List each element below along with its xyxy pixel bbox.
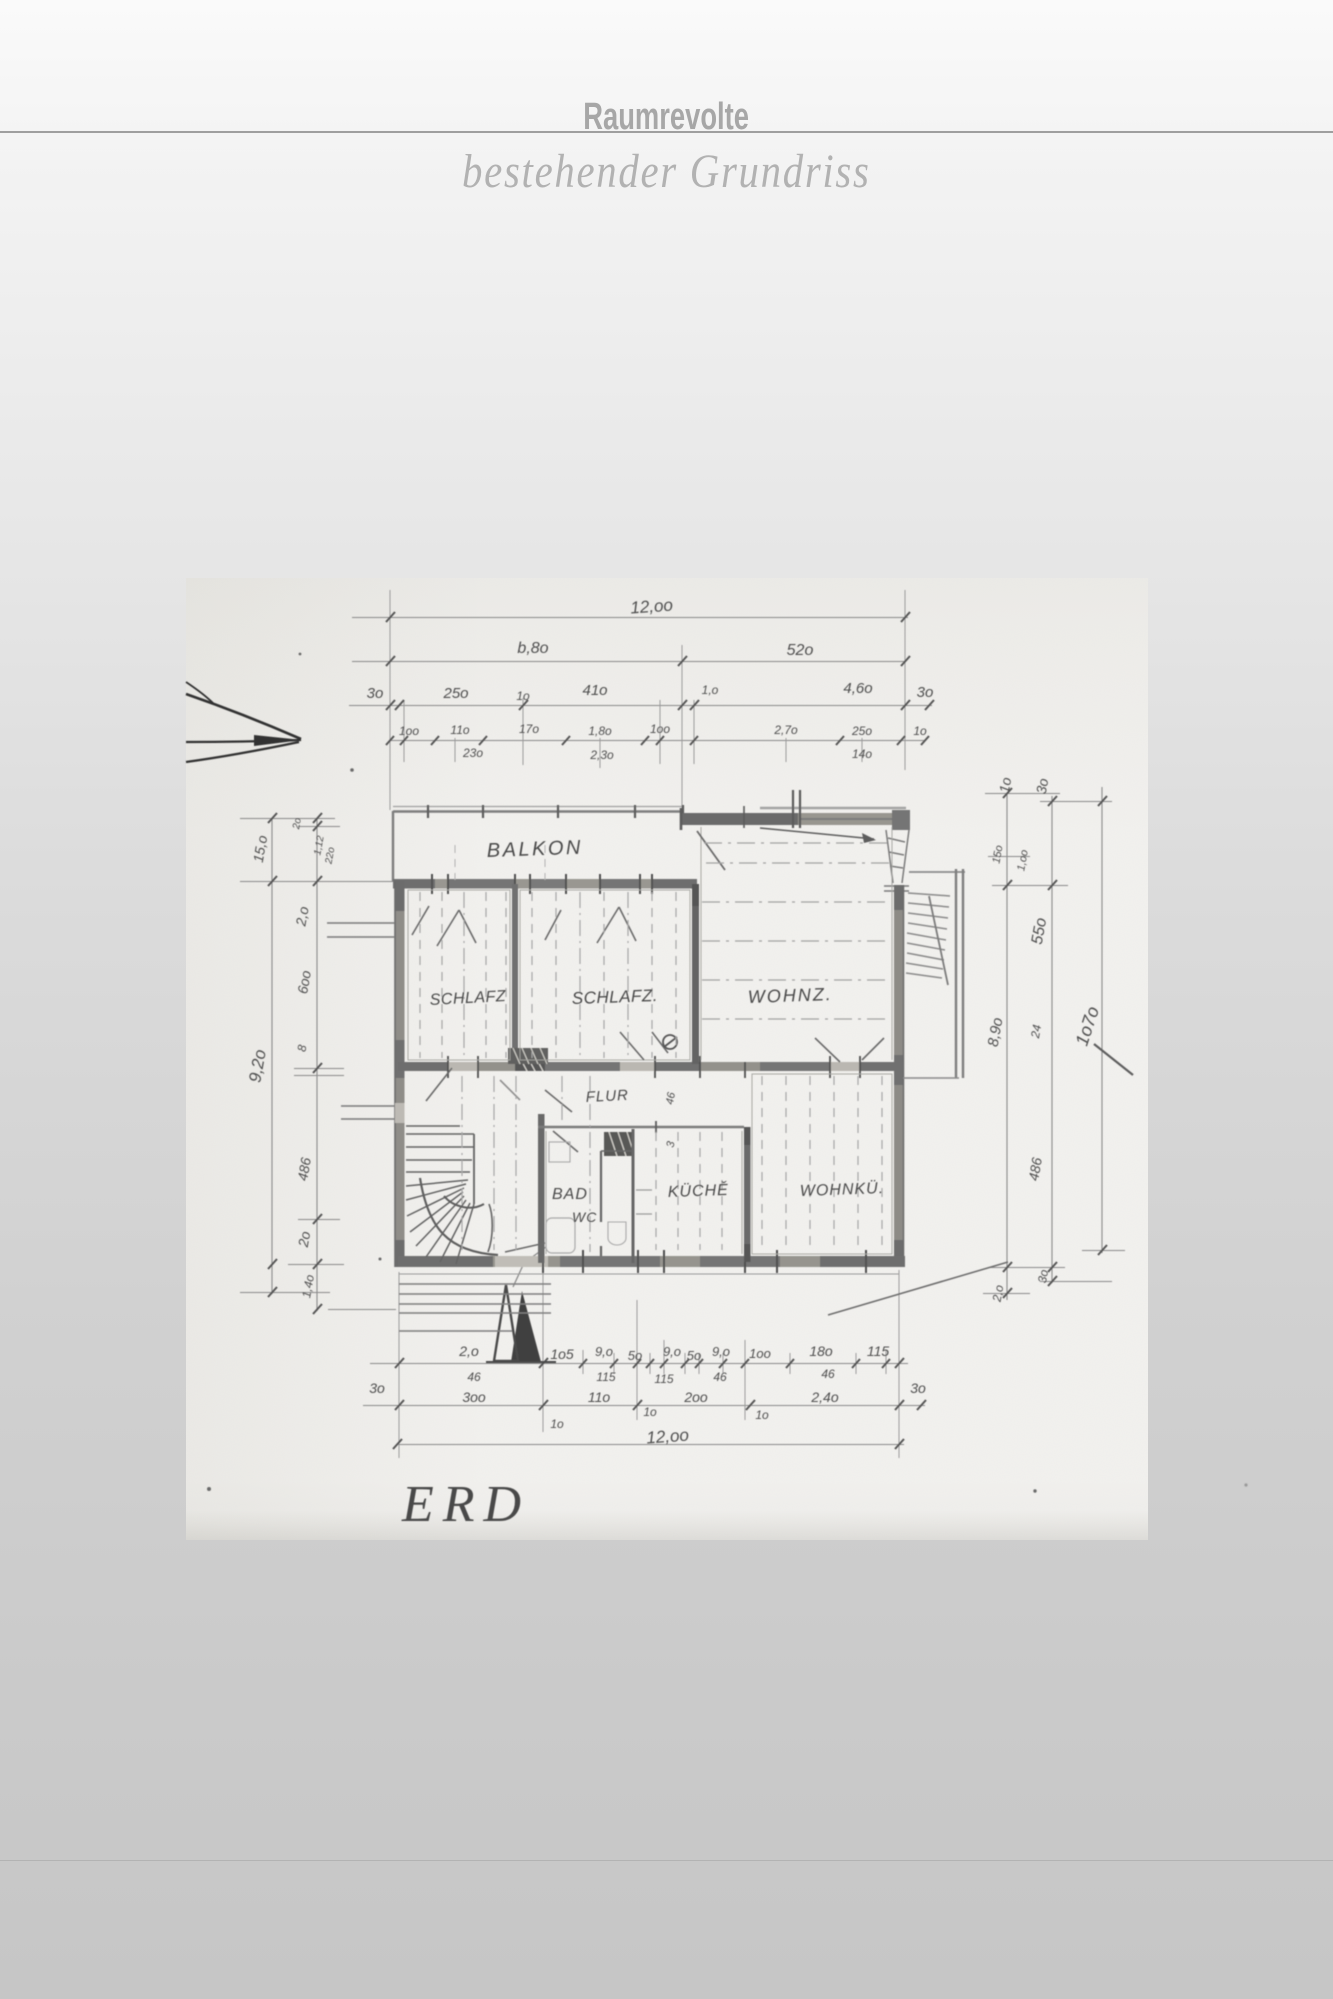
svg-text:5o: 5o xyxy=(628,1348,642,1363)
svg-text:1o: 1o xyxy=(643,1405,657,1419)
svg-text:2o: 2o xyxy=(291,817,304,831)
svg-text:12,oo: 12,oo xyxy=(646,1426,690,1448)
svg-text:12,oo: 12,oo xyxy=(630,596,674,618)
svg-text:25o: 25o xyxy=(442,685,468,702)
svg-text:9,o: 9,o xyxy=(595,1344,613,1359)
svg-text:46: 46 xyxy=(713,1370,727,1384)
svg-text:25o: 25o xyxy=(851,724,872,738)
svg-text:3o: 3o xyxy=(1035,1268,1051,1284)
svg-text:3o: 3o xyxy=(917,684,934,701)
svg-text:41o: 41o xyxy=(582,682,607,699)
svg-text:3oo: 3oo xyxy=(462,1389,486,1405)
svg-text:b,8o: b,8o xyxy=(517,640,548,657)
svg-text:1o: 1o xyxy=(516,689,530,703)
svg-text:2,7o: 2,7o xyxy=(773,723,798,737)
svg-text:WOHNKÜ.: WOHNKÜ. xyxy=(800,1179,885,1200)
svg-text:2,4o: 2,4o xyxy=(810,1389,838,1405)
svg-text:3o: 3o xyxy=(367,685,384,702)
svg-text:23o: 23o xyxy=(462,746,483,760)
svg-text:2o: 2o xyxy=(295,1230,314,1249)
svg-text:1o: 1o xyxy=(913,724,927,738)
svg-text:46: 46 xyxy=(821,1367,835,1381)
svg-text:4,6o: 4,6o xyxy=(843,680,872,697)
svg-text:FLUR: FLUR xyxy=(585,1087,629,1106)
svg-text:2,o: 2,o xyxy=(458,1343,479,1359)
svg-text:18o: 18o xyxy=(809,1343,833,1359)
svg-text:1,o: 1,o xyxy=(702,683,719,697)
svg-text:1oo: 1oo xyxy=(650,722,670,736)
svg-text:115: 115 xyxy=(654,1372,673,1386)
svg-text:14o: 14o xyxy=(852,747,872,761)
svg-text:24: 24 xyxy=(1028,1023,1044,1040)
svg-text:WC: WC xyxy=(572,1209,597,1225)
svg-text:9,o: 9,o xyxy=(712,1344,730,1359)
svg-text:1o5: 1o5 xyxy=(550,1346,574,1362)
svg-text:WOHNZ.: WOHNZ. xyxy=(747,984,833,1007)
svg-text:2oo: 2oo xyxy=(683,1389,708,1405)
svg-text:2,3o: 2,3o xyxy=(589,748,614,762)
svg-text:3o: 3o xyxy=(910,1380,926,1396)
svg-text:1oo: 1oo xyxy=(749,1346,771,1361)
svg-text:3o: 3o xyxy=(1033,777,1051,795)
svg-text:1,8o: 1,8o xyxy=(588,724,612,738)
svg-text:3o: 3o xyxy=(369,1380,385,1396)
svg-text:115: 115 xyxy=(867,1343,890,1359)
svg-text:115: 115 xyxy=(596,1370,615,1384)
svg-text:11o: 11o xyxy=(588,1389,611,1405)
svg-text:17o: 17o xyxy=(519,722,539,736)
svg-text:SCHLAFZ.: SCHLAFZ. xyxy=(571,986,658,1008)
svg-text:11o: 11o xyxy=(450,723,469,737)
svg-text:9,o: 9,o xyxy=(663,1344,681,1359)
svg-text:1o: 1o xyxy=(755,1408,769,1422)
svg-text:1oo: 1oo xyxy=(399,724,419,738)
svg-text:52o: 52o xyxy=(787,642,814,659)
svg-text:5o: 5o xyxy=(687,1348,701,1363)
svg-text:ERD: ERD xyxy=(401,1476,530,1533)
svg-text:1o: 1o xyxy=(550,1417,564,1431)
svg-text:BALKON: BALKON xyxy=(486,837,583,862)
svg-text:46: 46 xyxy=(467,1370,481,1384)
svg-text:KÜCHĚ: KÜCHĚ xyxy=(667,1180,729,1201)
svg-text:1o: 1o xyxy=(996,776,1014,794)
svg-text:BAD: BAD xyxy=(552,1186,588,1203)
